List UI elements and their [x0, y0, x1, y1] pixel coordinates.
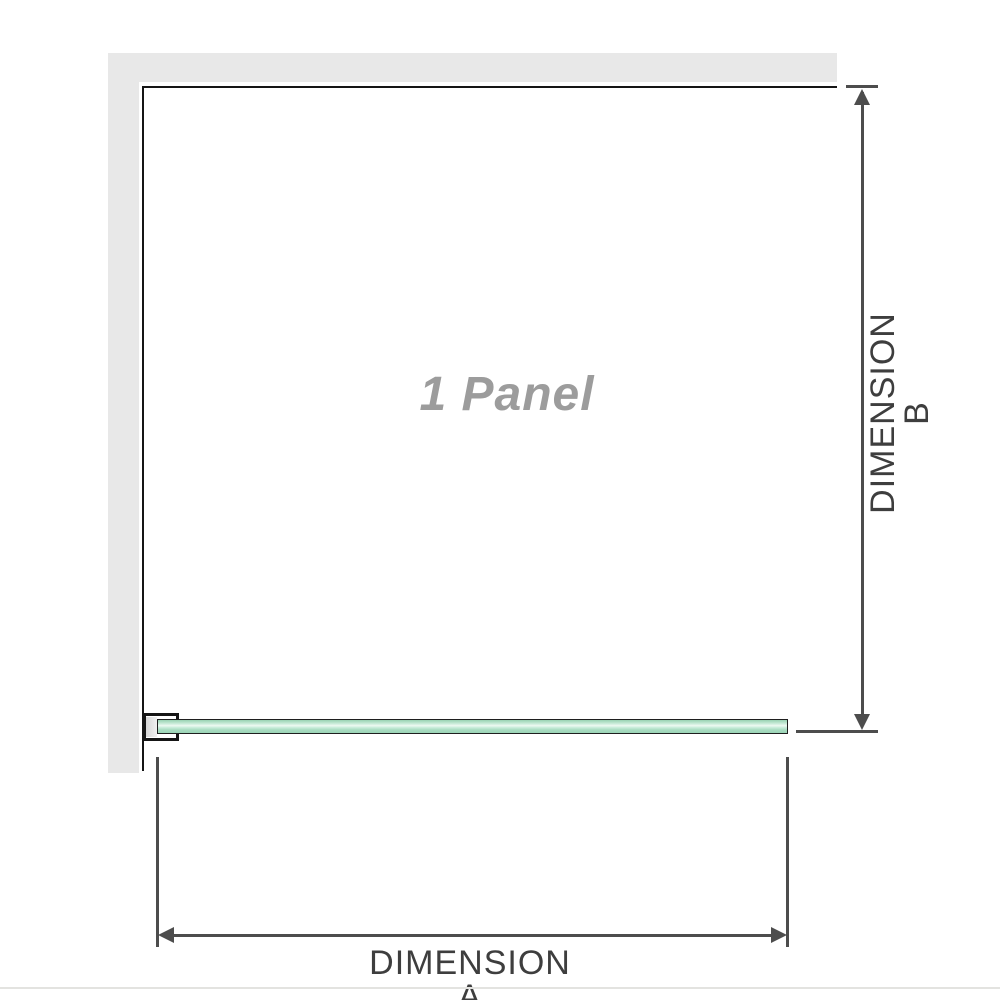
arrow-right-icon — [771, 927, 787, 943]
glass-panel-bar — [157, 719, 788, 734]
diagram-canvas: 1 Panel DIMENSION B DIMENSION A — [0, 0, 1000, 1000]
dimension-b-tick-top — [846, 85, 878, 88]
arrow-down-icon — [854, 714, 870, 730]
dimension-a-line — [170, 934, 775, 937]
dimension-a-extension-right — [786, 757, 789, 947]
dimension-b-tick-bottom — [796, 730, 878, 733]
wall-top — [108, 53, 837, 82]
dimension-b-label: DIMENSION B — [866, 303, 900, 523]
wall-bracket-pad — [146, 717, 157, 737]
arrow-up-icon — [854, 89, 870, 105]
wall-left — [108, 53, 139, 773]
dimension-a-label: DIMENSION A — [360, 946, 580, 980]
arrow-left-icon — [158, 927, 174, 943]
panel-outline — [142, 86, 837, 771]
dimension-a-extension-left — [156, 757, 159, 947]
panel-label: 1 Panel — [397, 366, 617, 424]
page-baseline-divider — [0, 987, 1000, 989]
